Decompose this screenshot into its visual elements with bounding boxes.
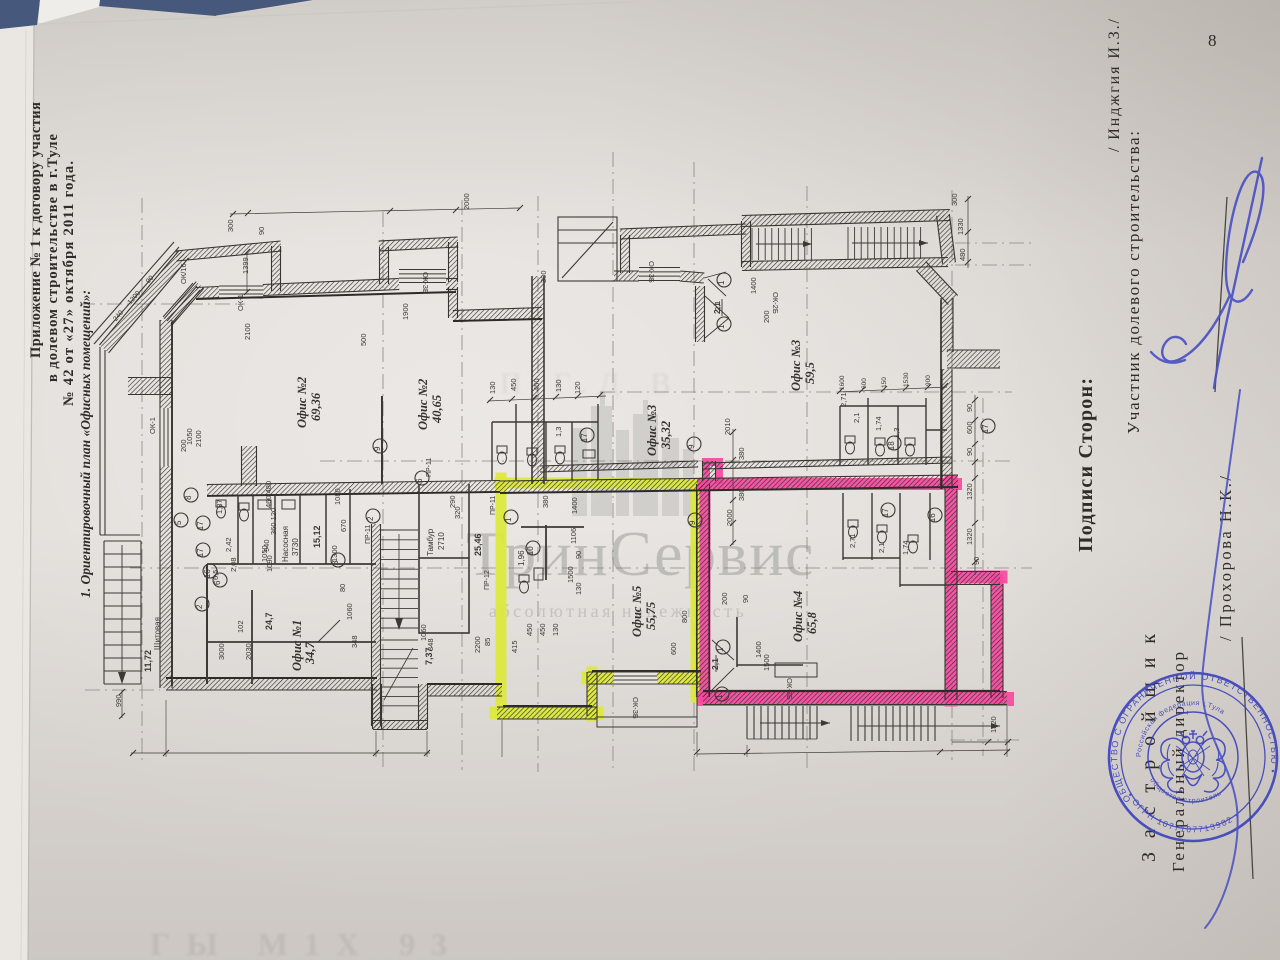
svg-text:1320: 1320 bbox=[965, 483, 974, 500]
svg-text:ПР-12: ПР-12 bbox=[484, 570, 491, 590]
svg-text:348: 348 bbox=[426, 638, 435, 651]
svg-text:6: 6 bbox=[213, 580, 222, 585]
svg-text:90: 90 bbox=[741, 595, 750, 603]
svg-text:Насосная: Насосная bbox=[281, 526, 290, 562]
svg-text:Офис №2: Офис №2 bbox=[295, 377, 309, 428]
svg-text:130: 130 bbox=[488, 381, 497, 394]
svg-text:900: 900 bbox=[925, 375, 932, 386]
svg-text:2,42: 2,42 bbox=[224, 537, 233, 552]
svg-text:380: 380 bbox=[737, 488, 746, 501]
svg-text:990: 990 bbox=[114, 694, 123, 707]
svg-text:1,96: 1,96 bbox=[517, 550, 526, 566]
svg-text:2100: 2100 bbox=[243, 323, 252, 340]
svg-text:1400: 1400 bbox=[749, 277, 758, 294]
svg-text:1: 1 bbox=[504, 517, 513, 522]
svg-text:380: 380 bbox=[737, 447, 746, 460]
svg-text:200: 200 bbox=[762, 310, 771, 323]
svg-text:ОК-3Б: ОК-3Б bbox=[421, 272, 430, 294]
svg-text:670: 670 bbox=[339, 519, 348, 532]
svg-text:69,36: 69,36 bbox=[309, 392, 323, 421]
svg-text:2: 2 bbox=[195, 604, 204, 609]
svg-text:130: 130 bbox=[554, 379, 563, 392]
svg-text:2010: 2010 bbox=[723, 418, 732, 435]
svg-text:17: 17 bbox=[881, 508, 890, 517]
svg-text:2,1: 2,1 bbox=[852, 413, 861, 423]
svg-text:348: 348 bbox=[350, 635, 359, 648]
svg-text:290: 290 bbox=[448, 495, 457, 508]
svg-text:1320: 1320 bbox=[989, 716, 998, 733]
svg-text:1050: 1050 bbox=[260, 545, 269, 562]
svg-text:150: 150 bbox=[881, 377, 888, 388]
svg-text:600: 600 bbox=[669, 642, 678, 655]
svg-text:ГЫ М1Х 93: ГЫ М1Х 93 bbox=[150, 926, 463, 960]
svg-text:ОК-1: ОК-1 bbox=[148, 417, 157, 434]
svg-text:17: 17 bbox=[981, 424, 990, 433]
svg-text:Офис №3: Офис №3 bbox=[789, 340, 803, 391]
svg-text:2,1: 2,1 bbox=[712, 302, 722, 314]
svg-text:102: 102 bbox=[236, 620, 245, 633]
svg-text:3000: 3000 bbox=[217, 643, 226, 660]
svg-text:ОК-1: ОК-1 bbox=[236, 294, 245, 311]
svg-text:450: 450 bbox=[509, 378, 518, 391]
svg-text:1320: 1320 bbox=[965, 528, 974, 545]
svg-text:55,75: 55,75 bbox=[644, 602, 658, 630]
svg-text:2100: 2100 bbox=[194, 430, 203, 447]
svg-text:9: 9 bbox=[687, 444, 696, 449]
svg-text:2,08: 2,08 bbox=[229, 557, 238, 572]
svg-text:1399: 1399 bbox=[241, 257, 250, 274]
svg-text:25,46: 25,46 bbox=[473, 533, 483, 556]
svg-text:2,1: 2,1 bbox=[877, 543, 886, 553]
svg-text:6: 6 bbox=[415, 478, 424, 483]
svg-text:90: 90 bbox=[257, 227, 266, 235]
svg-text:Офис №4: Офис №4 bbox=[791, 591, 805, 642]
svg-text:Офис №2: Офис №2 bbox=[416, 379, 430, 430]
svg-text:1,74: 1,74 bbox=[874, 416, 883, 431]
svg-text:24,7: 24,7 bbox=[264, 612, 274, 630]
svg-text:3: 3 bbox=[331, 560, 340, 565]
svg-text:1080: 1080 bbox=[333, 488, 342, 505]
svg-text:130: 130 bbox=[551, 623, 560, 636]
svg-text:ПР-11: ПР-11 bbox=[490, 496, 497, 515]
svg-text:ОК/16: ОК/16 bbox=[179, 263, 188, 284]
svg-text:1900: 1900 bbox=[401, 303, 410, 320]
svg-text:16: 16 bbox=[203, 569, 212, 578]
svg-text:600: 600 bbox=[861, 378, 868, 389]
svg-text:2000: 2000 bbox=[462, 193, 471, 210]
svg-text:18: 18 bbox=[887, 441, 896, 450]
svg-text:17: 17 bbox=[196, 521, 205, 530]
svg-text:1. Ориентировочный план «Офисн: 1. Ориентировочный план «Офисных помещен… bbox=[78, 290, 93, 598]
svg-text:9: 9 bbox=[688, 520, 697, 525]
svg-text:65,8: 65,8 bbox=[805, 611, 819, 634]
svg-text:380: 380 bbox=[541, 495, 550, 508]
svg-text:2: 2 bbox=[366, 516, 375, 521]
svg-text:2000: 2000 bbox=[725, 509, 734, 526]
svg-text:1106: 1106 bbox=[569, 528, 578, 544]
svg-text:10: 10 bbox=[526, 546, 535, 555]
svg-text:120: 120 bbox=[573, 381, 582, 394]
svg-text:1: 1 bbox=[715, 694, 724, 699]
svg-text:1500: 1500 bbox=[566, 566, 575, 583]
svg-text:450: 450 bbox=[538, 623, 547, 636]
svg-text:320: 320 bbox=[453, 506, 462, 519]
svg-text:Приложение № 1 к договору учас: Приложение № 1 к договору участия bbox=[28, 102, 44, 358]
svg-text:3730: 3730 bbox=[291, 538, 300, 556]
svg-text:2,71: 2,71 bbox=[848, 533, 857, 548]
svg-text:ПР-11: ПР-11 bbox=[426, 458, 433, 477]
svg-text:/ Инджгия И.З./: / Инджгия И.З./ bbox=[1106, 18, 1123, 152]
svg-text:80: 80 bbox=[338, 584, 347, 592]
svg-text:Щитовая: Щитовая bbox=[153, 617, 162, 650]
svg-text:17: 17 bbox=[196, 548, 205, 557]
svg-text:15,12: 15,12 bbox=[312, 525, 322, 548]
svg-text:300: 300 bbox=[539, 270, 548, 283]
svg-text:1: 1 bbox=[717, 324, 726, 329]
svg-text:460 480: 460 480 bbox=[264, 481, 273, 508]
svg-text:90: 90 bbox=[972, 557, 981, 565]
svg-text:300: 300 bbox=[226, 219, 235, 232]
svg-text:85: 85 bbox=[483, 638, 492, 646]
svg-text:ОК-3Б: ОК-3Б bbox=[631, 697, 640, 719]
svg-text:в долевом строительстве в г.Ту: в долевом строительстве в г.Туле bbox=[45, 133, 61, 382]
svg-text:Участник долевого строительств: Участник долевого строительства: bbox=[1124, 131, 1143, 434]
svg-text:ОК-3Б: ОК-3Б bbox=[785, 678, 794, 700]
svg-text:1: 1 bbox=[717, 280, 726, 285]
svg-text:2,71: 2,71 bbox=[839, 392, 848, 407]
svg-text:1330: 1330 bbox=[956, 218, 965, 235]
svg-text:1: 1 bbox=[716, 647, 725, 652]
svg-text:300: 300 bbox=[950, 193, 959, 206]
svg-text:1050: 1050 bbox=[185, 428, 194, 445]
svg-text:450: 450 bbox=[532, 378, 541, 391]
svg-text:1,74: 1,74 bbox=[901, 540, 910, 555]
svg-text:5: 5 bbox=[174, 520, 183, 525]
svg-text:1400: 1400 bbox=[570, 497, 579, 514]
svg-text:11,72: 11,72 bbox=[143, 650, 153, 672]
svg-text:90: 90 bbox=[965, 404, 974, 412]
svg-text:34,7: 34,7 bbox=[303, 641, 317, 665]
svg-text:1060: 1060 bbox=[345, 603, 354, 620]
svg-text:Офис №1: Офис №1 bbox=[290, 620, 304, 671]
svg-text:17: 17 bbox=[580, 433, 589, 442]
svg-text:ПР-11: ПР-11 bbox=[365, 525, 372, 544]
svg-text:8: 8 bbox=[184, 495, 193, 500]
svg-text:200: 200 bbox=[720, 592, 729, 605]
svg-text:1,87: 1,87 bbox=[215, 499, 224, 514]
svg-text:480: 480 bbox=[958, 248, 967, 261]
svg-text:1500: 1500 bbox=[762, 654, 771, 671]
svg-text:500: 500 bbox=[359, 333, 368, 346]
svg-text:Офис №3: Офис №3 bbox=[645, 405, 659, 456]
svg-text:130: 130 bbox=[574, 582, 583, 595]
svg-text:800: 800 bbox=[680, 610, 689, 623]
svg-text:ОК-2Б: ОК-2Б bbox=[771, 292, 780, 314]
svg-text:35,32: 35,32 bbox=[659, 421, 673, 450]
svg-text:450: 450 bbox=[525, 623, 534, 636]
svg-text:2200: 2200 bbox=[473, 636, 482, 653]
svg-text:8: 8 bbox=[1208, 31, 1217, 50]
svg-text:2710: 2710 bbox=[437, 532, 446, 550]
svg-text:59,5: 59,5 bbox=[803, 362, 817, 384]
svg-text:1600: 1600 bbox=[839, 375, 846, 390]
svg-text:ОК-3Б: ОК-3Б bbox=[647, 261, 656, 283]
svg-text:600: 600 bbox=[965, 421, 974, 434]
svg-text:90: 90 bbox=[574, 551, 583, 559]
svg-text:Подписи Сторон:: Подписи Сторон: bbox=[1075, 378, 1097, 552]
svg-text:16: 16 bbox=[928, 513, 937, 522]
svg-text:1,3: 1,3 bbox=[554, 427, 563, 437]
svg-text:2,1: 2,1 bbox=[710, 658, 720, 670]
svg-text:90: 90 bbox=[965, 448, 974, 456]
svg-text:1530: 1530 bbox=[903, 372, 910, 387]
svg-text:415: 415 bbox=[510, 640, 519, 653]
svg-text:Офис №5: Офис №5 bbox=[630, 586, 644, 637]
svg-text:40,65: 40,65 bbox=[430, 395, 444, 424]
svg-text:Тамбур: Тамбур bbox=[426, 528, 435, 556]
svg-text:9: 9 bbox=[373, 446, 382, 451]
svg-text:П Г.Д В: П Г.Д В bbox=[500, 367, 683, 400]
svg-text:360 120: 360 120 bbox=[269, 508, 278, 535]
svg-text:2030: 2030 bbox=[244, 643, 253, 660]
